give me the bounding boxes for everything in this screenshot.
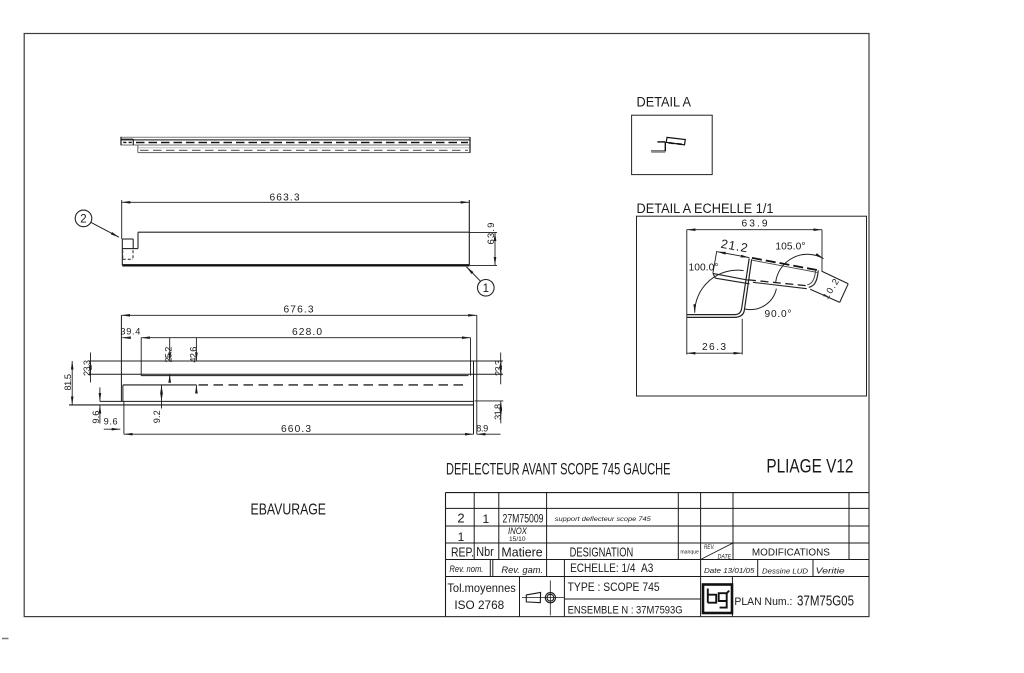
svg-text:Matiere: Matiere — [501, 546, 542, 560]
svg-text:Rev. nom.: Rev. nom. — [449, 564, 483, 574]
svg-text:23.3: 23.3 — [82, 360, 92, 376]
svg-text:Rev. gam.: Rev. gam. — [501, 565, 543, 575]
svg-text:100.0°: 100.0° — [689, 262, 719, 273]
svg-text:39.4: 39.4 — [120, 327, 140, 337]
svg-text:DATE: DATE — [718, 553, 732, 560]
svg-text:90.0°: 90.0° — [765, 309, 792, 320]
svg-text:1: 1 — [483, 283, 489, 295]
svg-text:9.6: 9.6 — [91, 411, 101, 424]
svg-text:REV.: REV. — [704, 544, 715, 551]
svg-text:MODIFICATIONS: MODIFICATIONS — [752, 547, 830, 559]
svg-text:15/10: 15/10 — [509, 536, 526, 543]
svg-text:Nbr: Nbr — [476, 545, 494, 559]
svg-text:ECHELLE: 1/4 A3: ECHELLE: 1/4 A3 — [570, 561, 653, 575]
svg-text:EBAVURAGE: EBAVURAGE — [251, 502, 327, 519]
svg-text:REP.: REP. — [451, 546, 474, 560]
svg-text:676.3: 676.3 — [284, 305, 314, 316]
svg-text:105.0°: 105.0° — [775, 241, 805, 252]
svg-text:DESIGNATION: DESIGNATION — [570, 546, 634, 560]
svg-text:23.3: 23.3 — [494, 360, 504, 376]
svg-text:1: 1 — [458, 530, 465, 544]
svg-text:TYPE : SCOPE 745: TYPE : SCOPE 745 — [568, 580, 660, 594]
svg-text:Veritie: Veritie — [816, 567, 846, 576]
svg-text:8.9: 8.9 — [476, 423, 488, 433]
svg-text:1: 1 — [482, 512, 489, 526]
svg-text:manque: manque — [680, 549, 699, 555]
svg-text:PLAN Num.:: PLAN Num.: — [734, 596, 792, 608]
svg-text:31.8: 31.8 — [493, 404, 503, 420]
svg-text:628.0: 628.0 — [292, 327, 322, 338]
svg-text:37M75G05: 37M75G05 — [797, 593, 854, 609]
svg-text:42.6: 42.6 — [189, 347, 199, 363]
svg-text:663.3: 663.3 — [270, 192, 300, 203]
svg-text:660.3: 660.3 — [281, 424, 311, 435]
svg-text:Date 13/01/05: Date 13/01/05 — [704, 568, 755, 575]
svg-text:support deflecteur scope 745: support deflecteur scope 745 — [555, 516, 651, 523]
svg-text:63.9: 63.9 — [486, 223, 497, 245]
svg-text:DETAIL A: DETAIL A — [637, 94, 692, 110]
svg-text:Tol.moyennes: Tol.moyennes — [447, 581, 515, 595]
svg-text:2: 2 — [80, 214, 86, 226]
svg-text:9.2: 9.2 — [152, 410, 162, 423]
svg-text:25.2: 25.2 — [163, 347, 173, 363]
svg-text:Dessine LUD: Dessine LUD — [762, 567, 809, 576]
svg-text:DEFLECTEUR AVANT SCOPE 745 GAU: DEFLECTEUR AVANT SCOPE 745 GAUCHE — [446, 460, 671, 478]
svg-text:PLIAGE V12: PLIAGE V12 — [766, 456, 853, 477]
svg-text:9.6: 9.6 — [104, 417, 118, 427]
svg-text:INOX: INOX — [508, 526, 528, 536]
svg-text:2: 2 — [457, 511, 464, 526]
svg-text:63.9: 63.9 — [742, 219, 768, 230]
svg-text:27M75009: 27M75009 — [503, 514, 544, 526]
svg-text:ISO 2768: ISO 2768 — [454, 598, 504, 612]
svg-text:26.3: 26.3 — [702, 342, 726, 353]
svg-text:ENSEMBLE N : 37M7593G: ENSEMBLE N : 37M7593G — [568, 605, 683, 617]
svg-text:DETAIL A ECHELLE 1/1: DETAIL A ECHELLE 1/1 — [637, 201, 774, 217]
svg-text:81.5: 81.5 — [63, 374, 73, 391]
